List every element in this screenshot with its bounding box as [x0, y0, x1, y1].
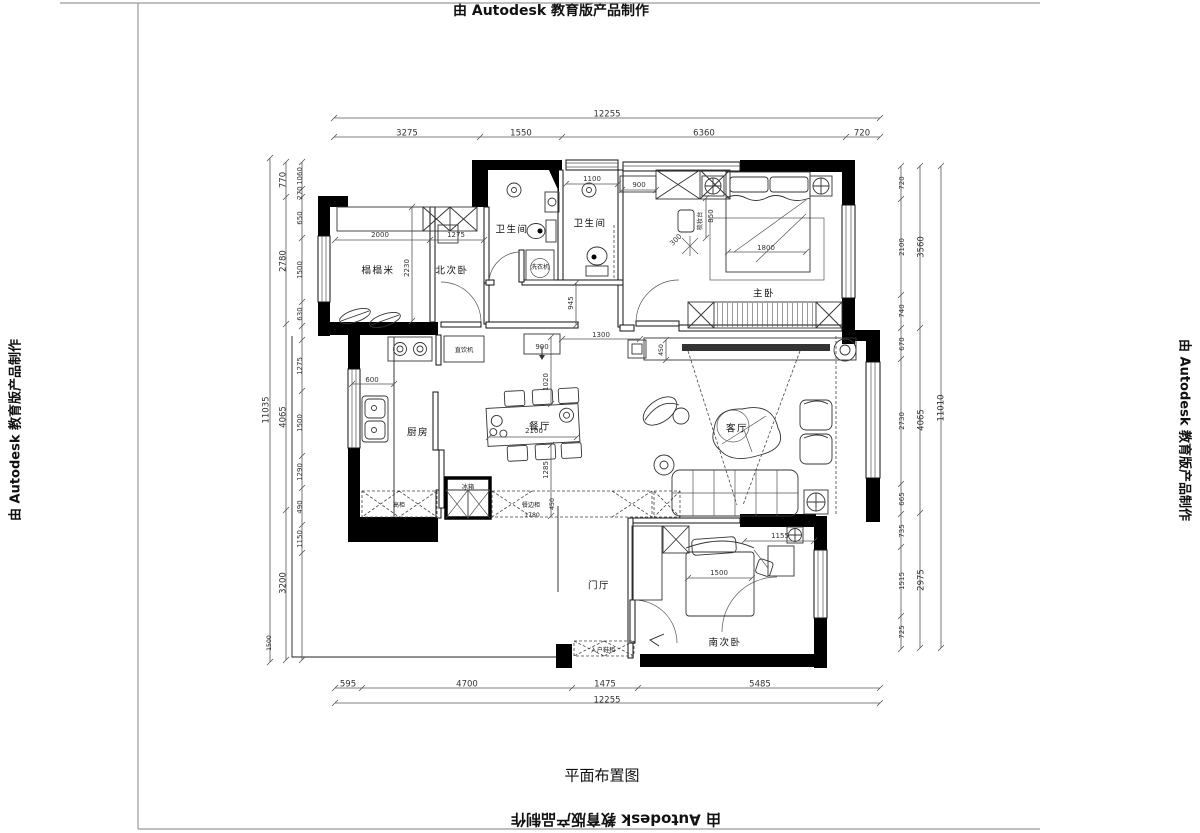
dim-label: 2975: [917, 569, 927, 591]
dim-label: 900: [535, 343, 548, 351]
dim-label: 3560: [917, 236, 927, 258]
dim-label: 1285: [542, 461, 550, 479]
dim-label: 630: [296, 307, 304, 320]
dim-label: 1060: [296, 167, 304, 185]
dim-label: 1550: [510, 129, 532, 139]
dim-label: 1500: [296, 261, 304, 279]
dim-label: 4700: [456, 680, 478, 690]
dim-label: 1800: [757, 244, 775, 252]
dim-label: 4065: [917, 409, 927, 431]
door-north-bedroom: [441, 282, 481, 327]
room-label: 南次卧: [708, 637, 741, 649]
dim-label: 450: [549, 498, 556, 510]
room-label: 榻榻米: [361, 265, 394, 277]
armchair: [800, 400, 832, 430]
dim-label: 冰箱: [462, 483, 474, 491]
dim-label: 490: [296, 500, 304, 513]
dim-label: 4065: [279, 406, 289, 428]
sheet-frame: [60, 3, 1040, 829]
dim-label: 2000: [371, 231, 389, 239]
room-label: 餐厅: [529, 421, 551, 433]
dim-label: 720: [898, 176, 906, 189]
bathroom-2: [582, 183, 608, 276]
door-south-arc: [722, 577, 777, 632]
door-master: [636, 280, 679, 326]
ceiling-lamp: [810, 176, 832, 196]
room-label: 客厅: [726, 423, 748, 435]
dim-label: 12255: [593, 696, 620, 706]
dim-label: 2100: [898, 238, 906, 256]
dim-label: 725: [898, 625, 906, 638]
window-bath2-top: [566, 160, 618, 170]
door-bath1: [489, 250, 524, 282]
dim-label: 1150: [296, 530, 304, 548]
window-south-right: [814, 550, 827, 618]
dim-label: 1515: [898, 572, 906, 590]
dim-label: 735: [898, 524, 906, 537]
dim-label: 1500: [296, 414, 304, 432]
window-balcony-right: [866, 362, 880, 478]
dim-label: 770: [279, 172, 289, 188]
dim-label: 945: [567, 296, 575, 309]
sofa: [672, 470, 798, 516]
dim-label: 1500: [266, 635, 273, 651]
bed-master: [726, 172, 810, 272]
dim-label: 梳妆台: [696, 212, 704, 231]
dim-label: 1275: [447, 231, 465, 239]
dim-label: 1780: [524, 512, 540, 519]
window-kitchen-left: [348, 369, 360, 448]
dim-label: 3200: [279, 572, 289, 594]
dim-label: 670: [898, 337, 906, 350]
floor-lamp: [804, 490, 828, 514]
dim-label: 850: [707, 209, 715, 222]
dim-label: 入户鞋柜: [591, 646, 616, 654]
room-label: 卫生间: [573, 218, 606, 230]
dim-label: 2230: [403, 259, 411, 277]
dim-label: 6360: [693, 129, 715, 139]
dim-label: 740: [898, 304, 906, 317]
dim-label: 720: [854, 129, 870, 139]
dim-label: 11035: [262, 396, 272, 423]
room-label: 门厅: [588, 580, 610, 592]
walls: [318, 160, 880, 668]
door-entry: [630, 600, 677, 646]
desk: [755, 546, 794, 577]
sideboard: [492, 491, 680, 517]
window-master-right: [842, 205, 855, 298]
dim-label: 595: [340, 680, 356, 690]
dim-label: 650: [296, 211, 304, 224]
floor-plan-canvas: 1225532751550636072059547001475548512255…: [0, 0, 1200, 833]
dim-label: 1020: [542, 373, 550, 391]
dim-label: 1275: [296, 357, 304, 375]
dim-label: 12255: [593, 110, 620, 120]
dim-label: 600: [365, 376, 378, 384]
dim-label: 高柜: [393, 501, 405, 509]
dim-label: 450: [658, 344, 665, 356]
room-label: 主卧: [753, 288, 775, 300]
master-closet: [688, 302, 842, 328]
dim-label: 665: [898, 492, 906, 505]
dim-label: 900: [632, 181, 645, 189]
dim-label: 3275: [396, 129, 418, 139]
dim-label: 洗衣机: [531, 263, 550, 271]
dim-label: 1475: [594, 680, 616, 690]
room-label: 厨房: [407, 427, 429, 439]
dim-label: 2780: [279, 250, 289, 272]
dim-label: 300: [668, 232, 683, 247]
dim-label: 1100: [583, 175, 601, 183]
dim-label: 5485: [749, 680, 771, 690]
window-left-tatami: [318, 236, 330, 302]
room-label: 卫生间: [495, 224, 528, 236]
dim-label: 11010: [937, 394, 947, 421]
room-label: 北次卧: [435, 265, 468, 277]
dim-label: 1290: [296, 463, 304, 481]
dim-label: 2730: [898, 412, 906, 430]
dim-label: 1300: [592, 331, 610, 339]
dim-label: 1155: [771, 532, 789, 540]
dim-label: 270: [296, 186, 304, 199]
dim-label: 餐边柜: [522, 501, 541, 509]
dim-label: 直饮机: [455, 346, 474, 354]
armchair: [800, 434, 832, 464]
dim-label: 1500: [710, 569, 728, 577]
